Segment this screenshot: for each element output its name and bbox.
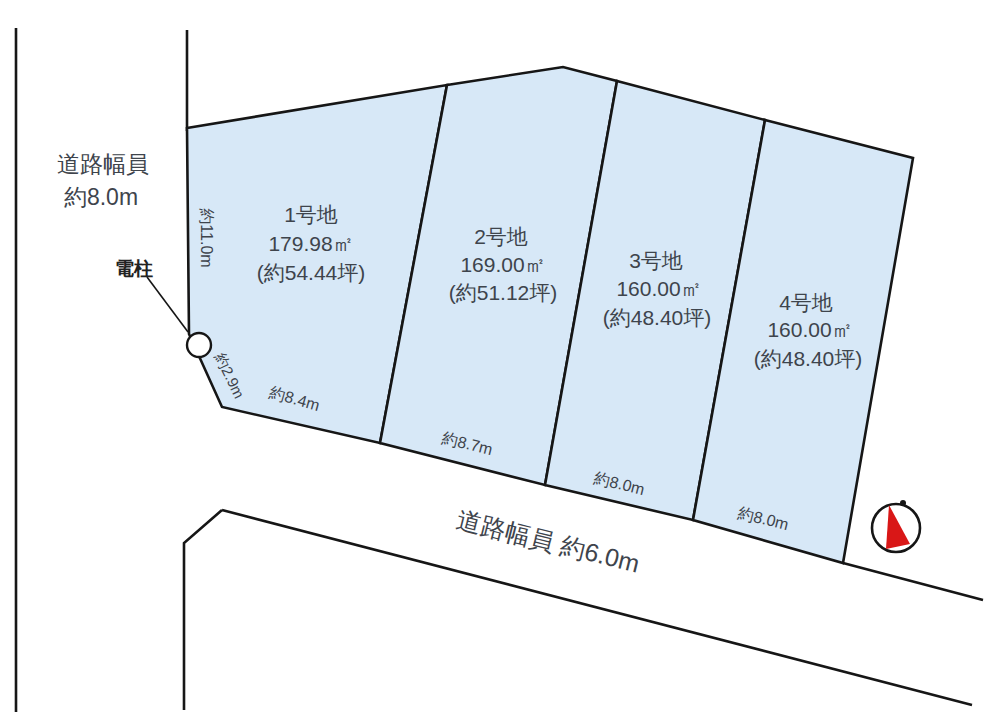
plot-1-area-m2: 179.98㎡ (268, 232, 353, 255)
bottom-road-width-label: 道路幅員 約6.0m (454, 505, 643, 578)
plot-4-area-tsubo: (約48.40坪) (754, 347, 863, 370)
plot-4-area-m2: 160.00㎡ (767, 318, 852, 341)
plot-2-area-m2: 169.00㎡ (460, 253, 545, 276)
plot-2-name: 2号地 (474, 225, 528, 248)
bottom-road-left-corner-line (184, 510, 222, 710)
plot-3-name: 3号地 (629, 249, 683, 272)
left-road-width-label-line2: 約8.0m (64, 184, 138, 210)
utility-pole-label: 電柱 (115, 258, 153, 279)
plot-1-name: 1号地 (284, 203, 338, 226)
dimension-left-depth: 約11.0m (198, 208, 215, 267)
plot-4-name: 4号地 (779, 291, 833, 314)
land-plot-diagram: 道路幅員 約8.0m 電柱 約11.0m 約2.9m 約8.4m 約8.7m 約… (0, 0, 1000, 722)
plot-2-area-tsubo: (約51.12坪) (449, 281, 558, 304)
plot-1-area-tsubo: (約54.44坪) (257, 261, 366, 284)
pole-leader-line (147, 277, 188, 332)
plot-3-area-m2: 160.00㎡ (616, 277, 701, 300)
compass-north-dot (900, 500, 906, 506)
bottom-road-upper-edge-extension-line (843, 563, 983, 600)
plot-3-area-tsubo: (約48.40坪) (603, 306, 712, 329)
left-road-width-label-line1: 道路幅員 (57, 151, 149, 177)
site-plan-svg: 道路幅員 約8.0m 電柱 約11.0m 約2.9m 約8.4m 約8.7m 約… (0, 0, 1000, 722)
utility-pole-marker (187, 333, 211, 357)
north-arrow-icon (872, 500, 920, 552)
